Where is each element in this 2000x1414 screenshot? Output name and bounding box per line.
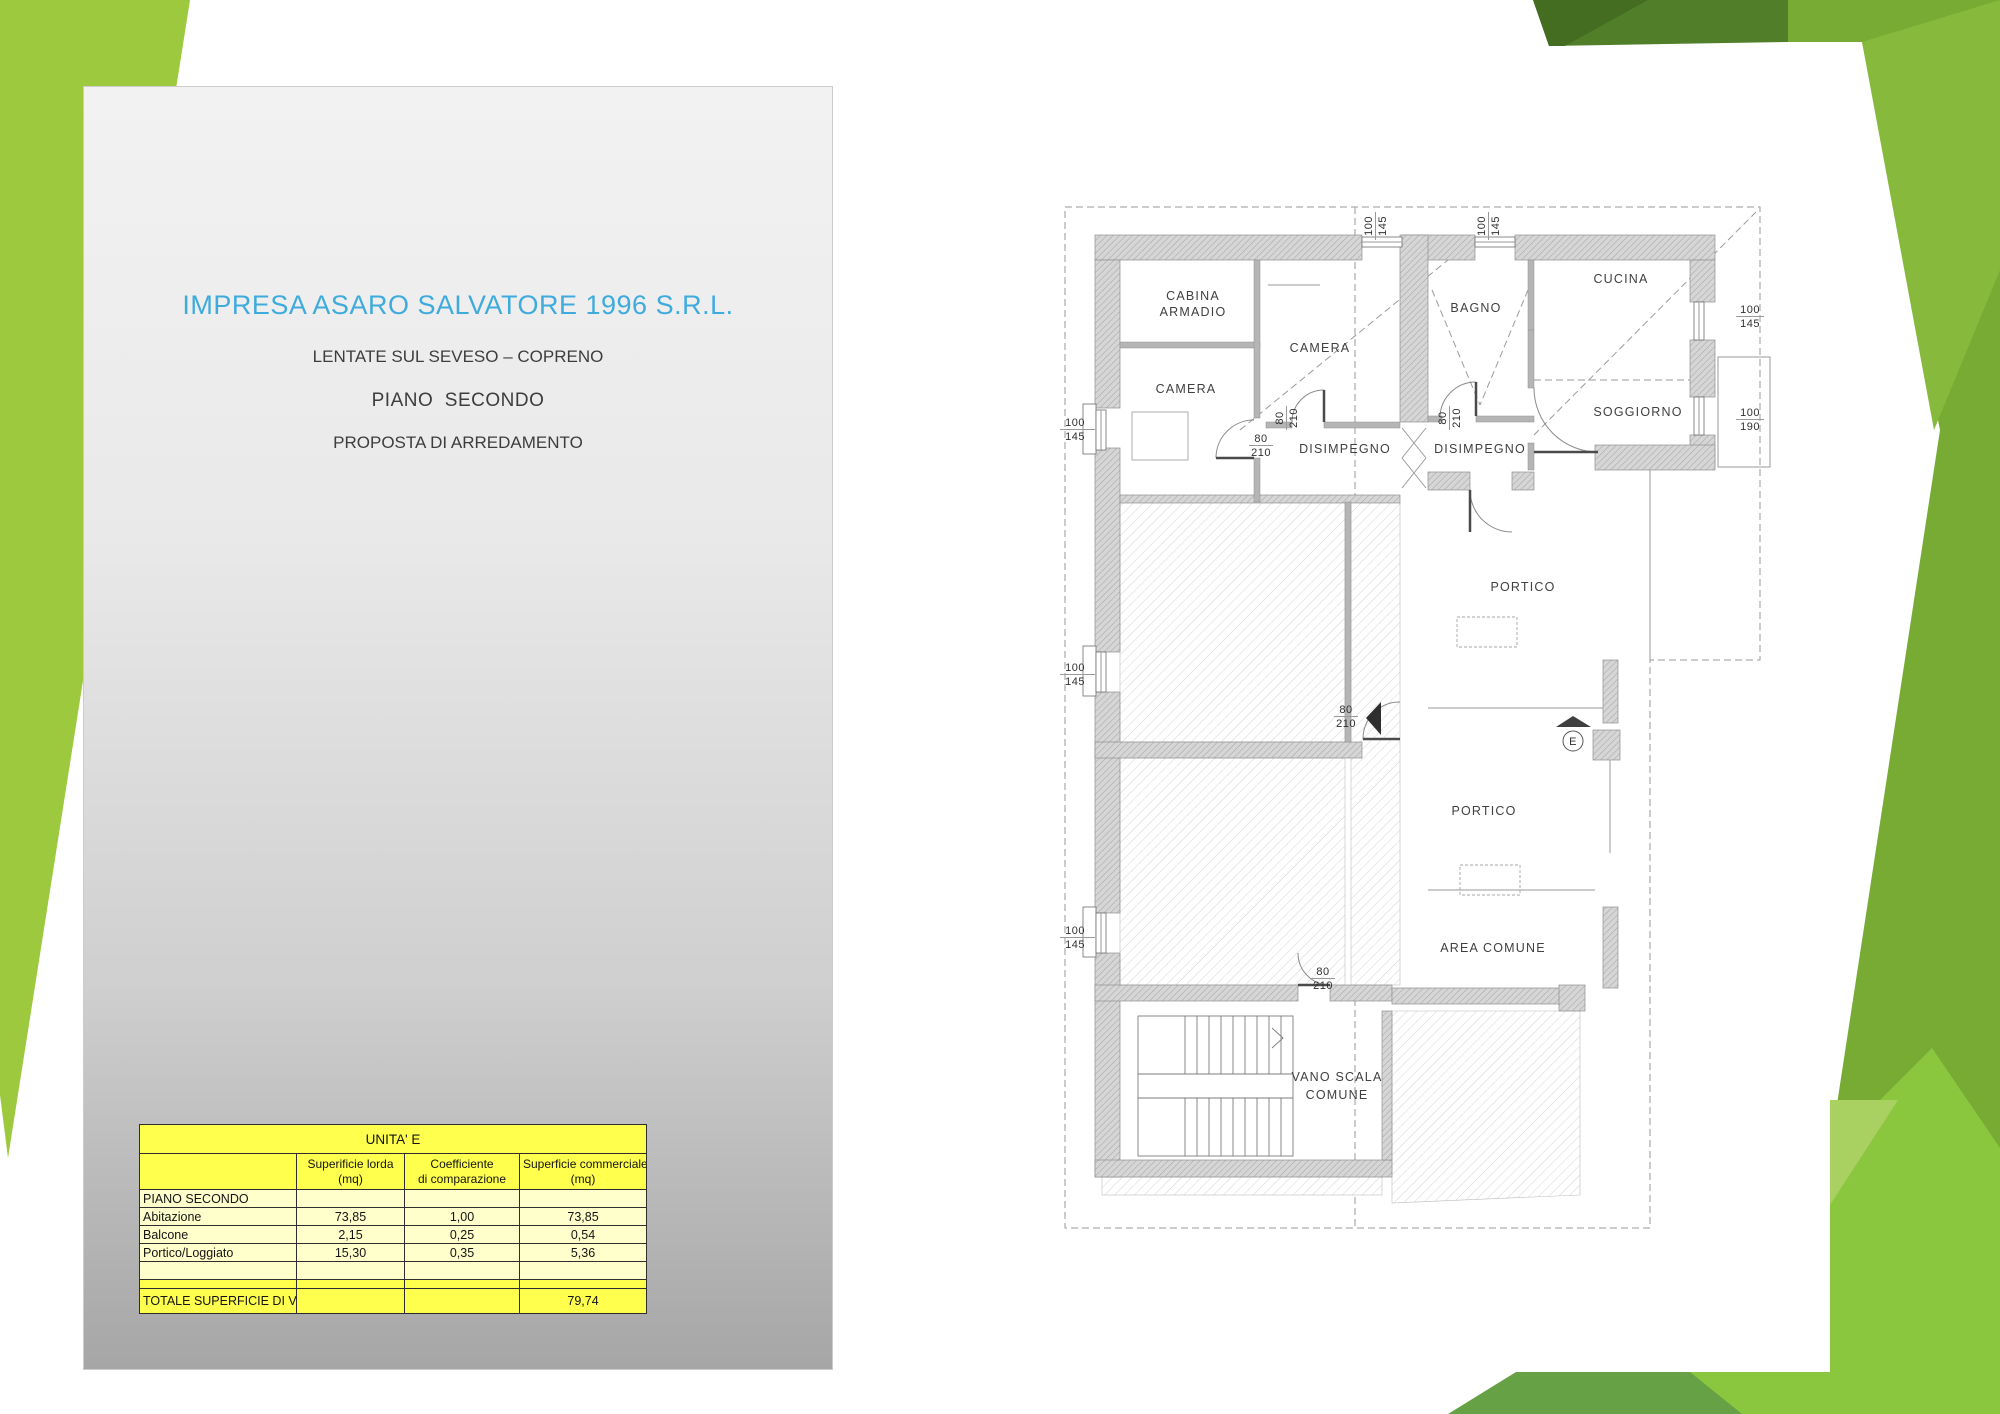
table-total-row: TOTALE SUPERFICIE DI VENDITA 79,74 — [140, 1289, 647, 1314]
room-label-cabina: CABINA — [1166, 289, 1220, 303]
room-label-camera-center: CAMERA — [1290, 341, 1351, 355]
svg-text:100: 100 — [1065, 417, 1085, 429]
room-label-disimpegno-right: DISIMPEGNO — [1434, 442, 1526, 456]
entrance-direction-icon — [1556, 716, 1591, 727]
slide-canvas: IMPRESA ASARO SALVATORE 1996 S.R.L. LENT… — [0, 0, 2000, 1414]
svg-text:100: 100 — [1065, 925, 1085, 937]
room-label-soggiorno: SOGGIORNO — [1593, 405, 1682, 419]
svg-text:100: 100 — [1065, 662, 1085, 674]
svg-text:100: 100 — [1740, 407, 1760, 419]
table-row: Abitazione73,851,0073,85 — [140, 1208, 647, 1226]
room-label-camera-left: CAMERA — [1156, 382, 1217, 396]
stairs — [1138, 1016, 1293, 1156]
svg-text:210: 210 — [1336, 718, 1356, 730]
svg-text:100: 100 — [1740, 304, 1760, 316]
bed-outline — [1132, 412, 1188, 460]
location-subtitle: LENTATE SUL SEVESO – COPRENO — [84, 347, 832, 367]
company-title: IMPRESA ASARO SALVATORE 1996 S.R.L. — [84, 290, 832, 321]
room-label-vano-scala: VANO SCALA — [1292, 1070, 1383, 1084]
room-label-area-comune: AREA COMUNE — [1440, 941, 1546, 955]
entrance-letter: E — [1569, 736, 1577, 748]
dim-door-80-210: 80210 — [1249, 433, 1273, 459]
svg-text:210: 210 — [1451, 408, 1463, 428]
dim-window-100-145: 100145 — [1363, 212, 1389, 240]
table-row: Portico/Loggiato15,300,355,36 — [140, 1244, 647, 1262]
table-spacer-row — [140, 1280, 647, 1289]
svg-text:80: 80 — [1254, 433, 1267, 445]
svg-text:100: 100 — [1363, 216, 1375, 236]
room-label-disimpegno-left: DISIMPEGNO — [1299, 442, 1391, 456]
svg-text:210: 210 — [1288, 408, 1300, 428]
surface-table: UNITA' E Superificie lorda(mq) Coefficie… — [139, 1124, 647, 1314]
svg-text:80: 80 — [1339, 704, 1352, 716]
room-label-portico-upper: PORTICO — [1490, 580, 1555, 594]
svg-text:210: 210 — [1313, 980, 1333, 992]
proposal-subtitle: PROPOSTA DI ARREDAMENTO — [84, 433, 832, 453]
table-header-row: Superificie lorda(mq) Coefficientedi com… — [140, 1154, 647, 1190]
room-label-portico-lower: PORTICO — [1451, 804, 1516, 818]
unit-e-marker: E — [1556, 716, 1591, 751]
floor-plan: E CABINA ARMADIO CAMERA CAMERA BAGNO CUC… — [1050, 190, 1790, 1250]
room-label-bagno: BAGNO — [1450, 301, 1501, 315]
svg-text:210: 210 — [1251, 447, 1271, 459]
svg-text:100: 100 — [1476, 216, 1488, 236]
room-label-cucina: CUCINA — [1593, 272, 1648, 286]
table-row: PIANO SECONDO — [140, 1190, 647, 1208]
svg-text:145: 145 — [1740, 318, 1760, 330]
portico-skylight — [1457, 617, 1517, 647]
svg-text:145: 145 — [1377, 216, 1389, 236]
info-panel: IMPRESA ASARO SALVATORE 1996 S.R.L. LENT… — [83, 86, 833, 1370]
col-header-coeff: Coefficientedi comparazione — [405, 1154, 520, 1190]
total-value: 79,74 — [520, 1289, 647, 1314]
svg-text:145: 145 — [1065, 676, 1085, 688]
dim-window-100-145: 100145 — [1476, 212, 1502, 240]
dim-window-100-190: 100190 — [1736, 407, 1764, 433]
svg-text:145: 145 — [1065, 939, 1085, 951]
svg-text:80: 80 — [1316, 966, 1329, 978]
svg-text:80: 80 — [1274, 411, 1286, 424]
dim-window-100-145: 100145 — [1736, 304, 1764, 330]
svg-text:190: 190 — [1740, 421, 1760, 433]
floor-subtitle: PIANO SECONDO — [84, 390, 832, 412]
room-label-cabina2: ARMADIO — [1160, 305, 1227, 319]
room-label-vano-scala2: COMUNE — [1306, 1088, 1369, 1102]
svg-text:145: 145 — [1490, 216, 1502, 236]
svg-text:80: 80 — [1437, 411, 1449, 424]
folding-door — [1402, 428, 1426, 488]
table-title: UNITA' E — [140, 1125, 647, 1154]
col-header-comm: Superficie commerciale(mq) — [520, 1154, 647, 1190]
table-row — [140, 1262, 647, 1280]
col-header-lorda: Superificie lorda(mq) — [297, 1154, 405, 1190]
total-label: TOTALE SUPERFICIE DI VENDITA — [140, 1289, 297, 1314]
svg-text:145: 145 — [1065, 431, 1085, 443]
table-title-row: UNITA' E — [140, 1125, 647, 1154]
table-row: Balcone2,150,250,54 — [140, 1226, 647, 1244]
